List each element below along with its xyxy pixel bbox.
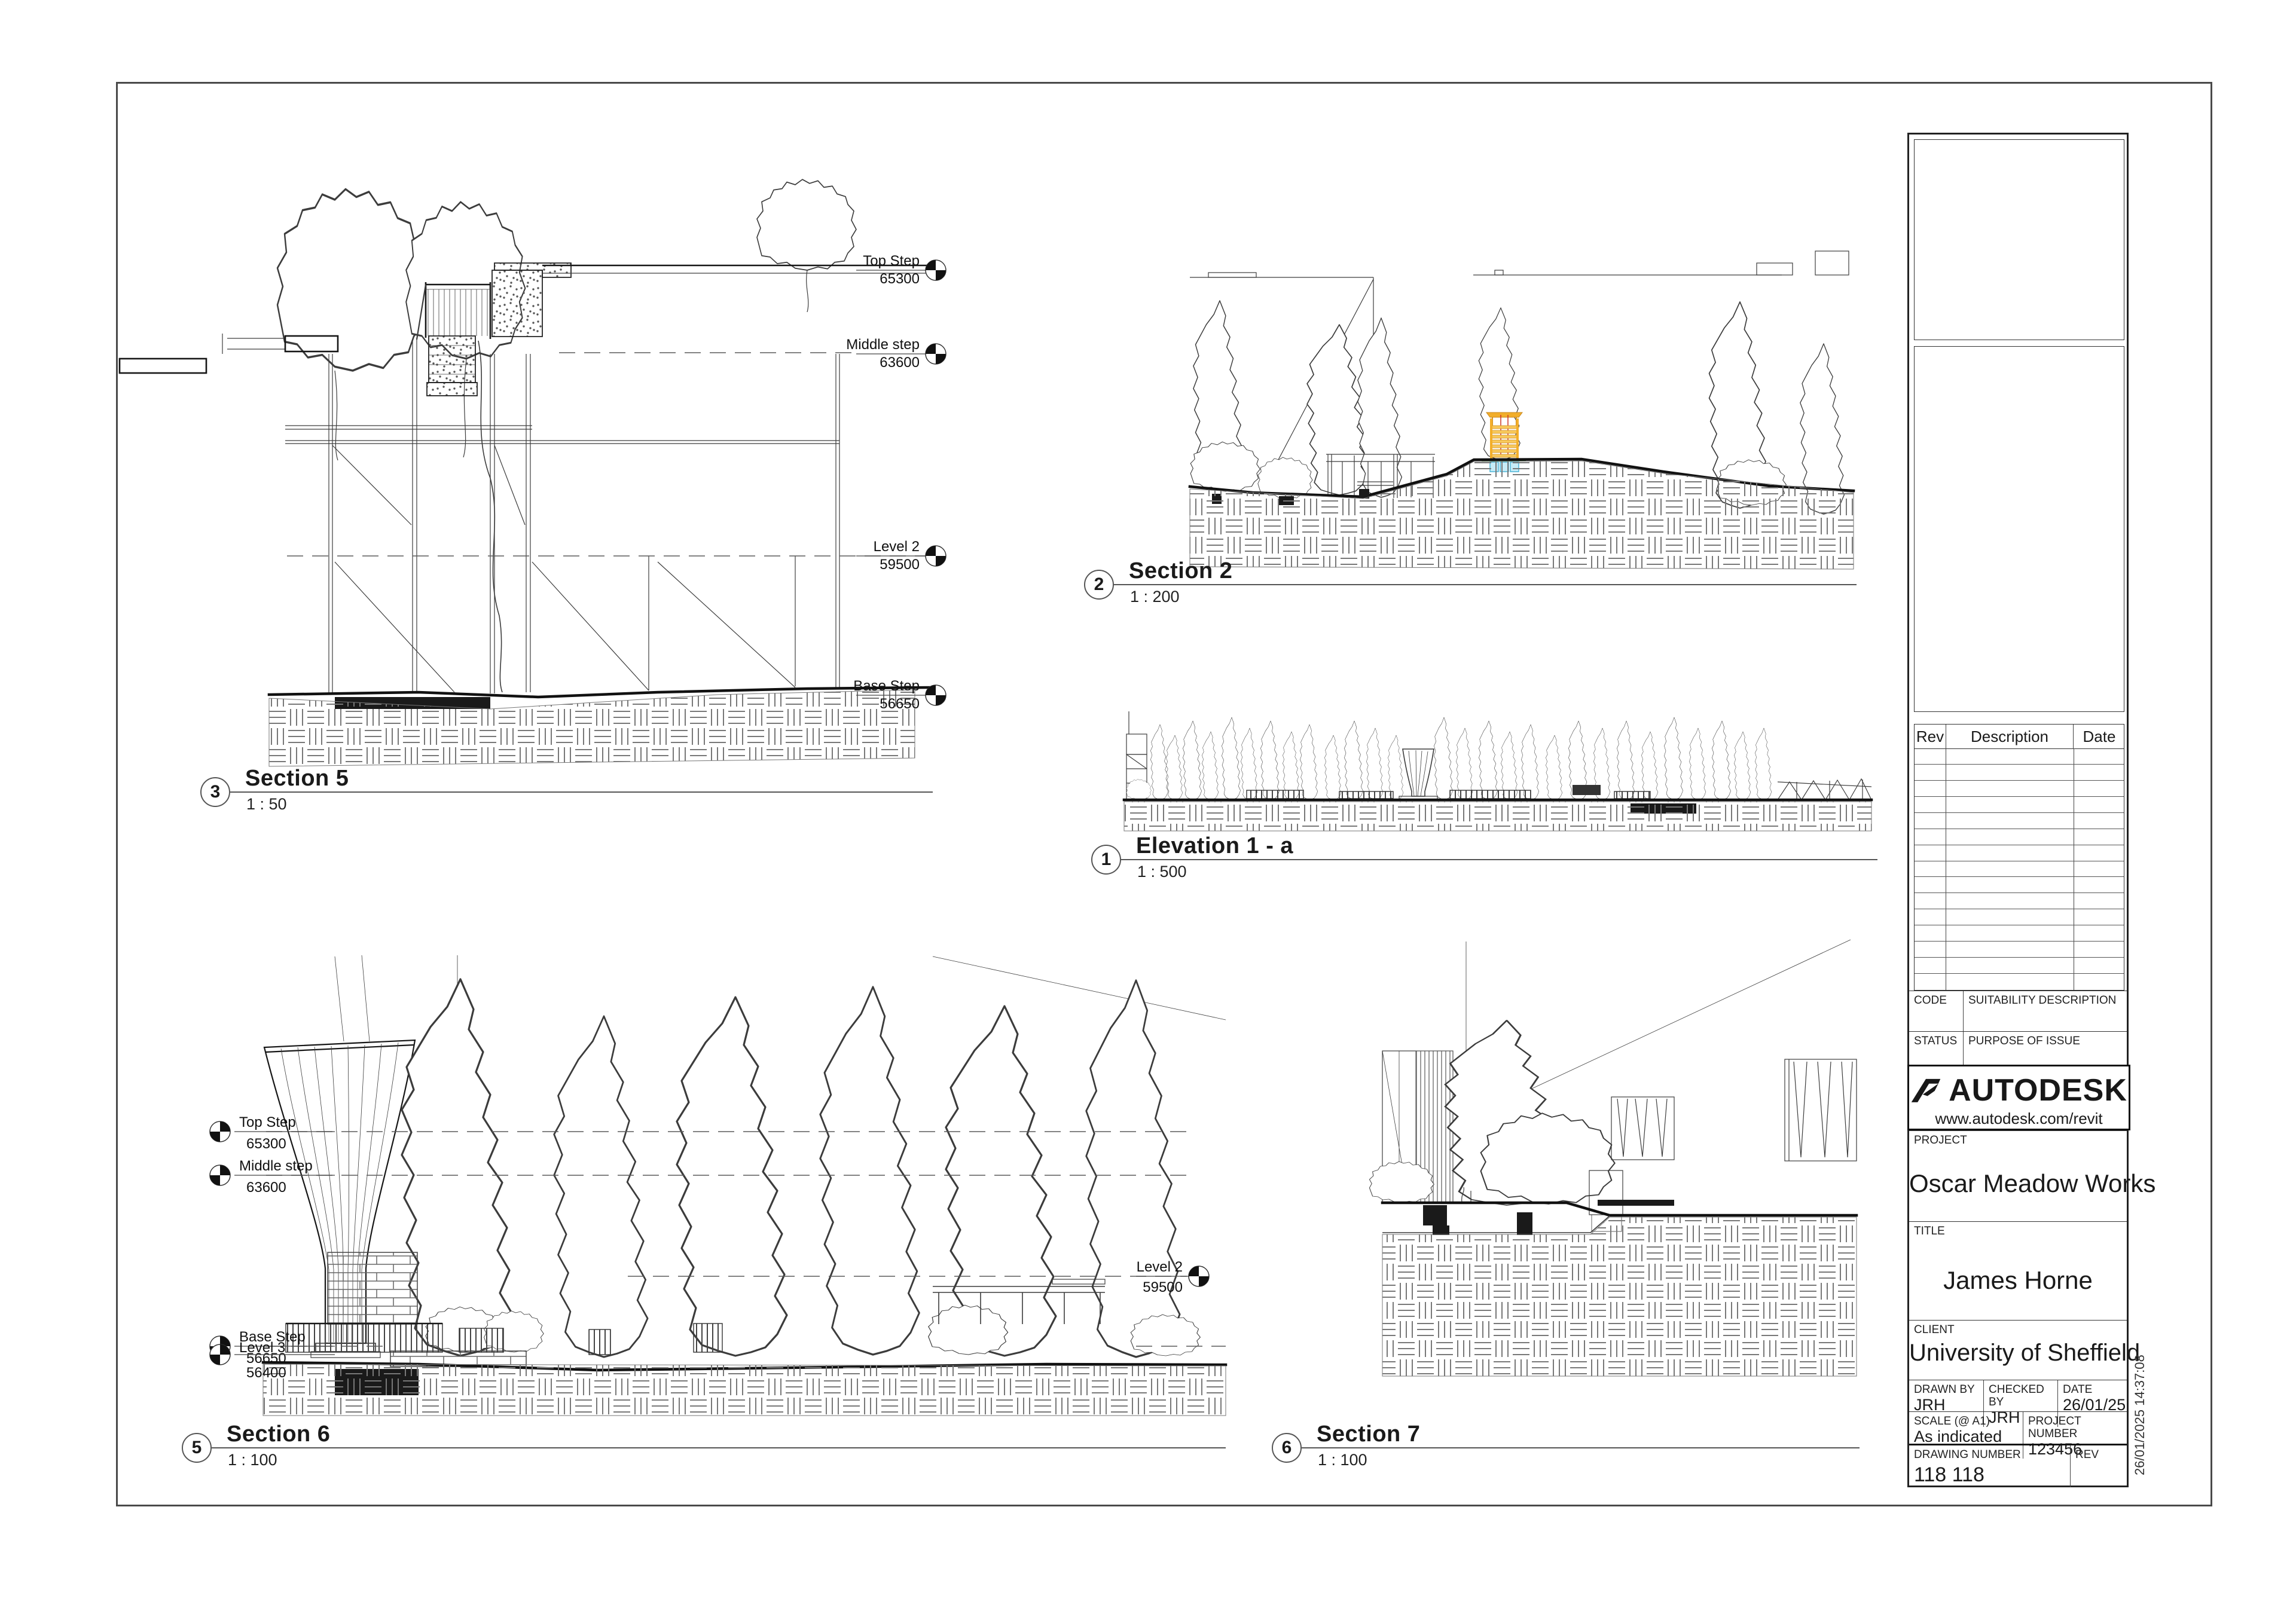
drawn-by-label: DRAWN BY [1914, 1383, 1983, 1396]
view-number-badge: 5 [182, 1433, 212, 1463]
svg-text:59500: 59500 [880, 557, 920, 573]
rev-label: REV [2075, 1448, 2127, 1461]
svg-text:Middle step: Middle step [846, 337, 920, 353]
level-annotation-top-step: Top Step 65300 [856, 253, 946, 287]
autodesk-brand-text: AUTODESK [1949, 1072, 2127, 1108]
view-title: Elevation 1 - a [1136, 833, 1293, 859]
svg-text:65300: 65300 [246, 1136, 286, 1152]
client-section: CLIENT University of Sheffield [1909, 1320, 2127, 1380]
view-title-rule [1114, 584, 1857, 585]
purpose-label: PURPOSE OF ISSUE [1963, 1032, 2130, 1065]
view-title: Section 7 [1317, 1422, 1420, 1447]
sheet-title: James Horne [1909, 1266, 2127, 1295]
svg-text:56650: 56650 [880, 696, 920, 712]
level-annotation-level2: Level 2 59500 [856, 539, 946, 573]
view-section7 [1369, 940, 1857, 1376]
client-label: CLIENT [1909, 1321, 2127, 1336]
svg-text:Base Step: Base Step [853, 678, 920, 694]
view-elevation1a [1124, 711, 1871, 831]
title-block: Rev Description Date CODE SUITABILITY DE… [1907, 133, 2129, 1487]
drawing-number-row: DRAWING NUMBER 118 118 REV [1909, 1444, 2127, 1487]
client-name: University of Sheffield [1909, 1340, 2127, 1367]
scale-row: SCALE (@ A1)As indicated PROJECT NUMBER1… [1909, 1411, 2127, 1444]
elevation-tower [1399, 749, 1437, 800]
svg-text:63600: 63600 [246, 1179, 286, 1196]
view-title-rule [1121, 859, 1877, 860]
tree-row [1126, 717, 1772, 800]
svg-text:Top Step: Top Step [239, 1114, 296, 1130]
autodesk-url: www.autodesk.com/revit [1909, 1109, 2129, 1128]
print-timestamp: 26/01/2025 14:37:08 [2132, 1355, 2148, 1475]
svg-text:59500: 59500 [1143, 1279, 1183, 1295]
empty-box [1914, 346, 2124, 712]
date-label: DATE [2063, 1383, 2127, 1396]
status-label: STATUS [1909, 1032, 1963, 1065]
view-scale: 1 : 500 [1137, 863, 1187, 881]
view-scale: 1 : 200 [1130, 588, 1180, 606]
ground-hatch [263, 1364, 1226, 1416]
svg-text:56400: 56400 [246, 1365, 286, 1381]
level-annotation-middle-step: Middle step 63600 [210, 1158, 335, 1196]
autodesk-box: AUTODESK www.autodesk.com/revit [1907, 1065, 2130, 1130]
code-row: CODE SUITABILITY DESCRIPTION [1909, 991, 2127, 1031]
view-title-rule [230, 791, 933, 793]
status-row: STATUS PURPOSE OF ISSUE [1909, 1031, 2127, 1065]
drawing-sheet: { "sheet": { "timestamp": "26/01/2025 14… [0, 0, 2296, 1623]
view-number-badge: 2 [1084, 570, 1114, 600]
trees [402, 979, 1200, 1357]
project-name: Oscar Meadow Works [1909, 1169, 2127, 1198]
map-box [1914, 139, 2124, 340]
project-label: PROJECT [1909, 1131, 2127, 1147]
trees [1369, 1020, 1614, 1205]
view-scale: 1 : 100 [1318, 1451, 1367, 1469]
level-annotation-top-step: Top Step 65300 [210, 1114, 335, 1152]
structure-frame [285, 339, 839, 695]
project-number-label: PROJECT NUMBER [2028, 1415, 2127, 1440]
revision-table-header: Rev Description Date [1915, 725, 2124, 749]
view-number-badge: 3 [200, 777, 230, 807]
view-section2 [1190, 251, 1854, 569]
brick-block [328, 1252, 417, 1324]
view-title-rule [1302, 1447, 1860, 1448]
foundation-blocks [1423, 1205, 1532, 1235]
svg-text:Top Step: Top Step [863, 253, 920, 269]
view-scale: 1 : 50 [246, 795, 287, 814]
view-title-rule [212, 1447, 1226, 1448]
svg-text:65300: 65300 [880, 271, 920, 287]
svg-text:Level 2: Level 2 [874, 539, 920, 555]
view-number-badge: 1 [1091, 845, 1121, 875]
right-building-a [1611, 1097, 1674, 1160]
autodesk-logo-icon [1910, 1077, 1941, 1104]
revision-table-rows [1915, 748, 2124, 990]
svg-text:Level 3: Level 3 [239, 1340, 285, 1356]
svg-text:Level 2: Level 2 [1137, 1259, 1183, 1275]
right-truss [1778, 779, 1871, 800]
checked-by-label: CHECKED BY [1989, 1383, 2057, 1408]
view-scale: 1 : 100 [228, 1451, 277, 1469]
view-title: Section 6 [227, 1422, 330, 1447]
code-label: CODE [1909, 991, 1963, 1031]
tower-slats [1491, 426, 1518, 457]
view-number-badge: 6 [1272, 1433, 1302, 1463]
level-annotation-middle-step: Middle step 63600 [846, 337, 946, 371]
view-title: Section 2 [1129, 558, 1232, 584]
drawing-number-value: 118 118 [1914, 1463, 2070, 1487]
view-section5: Top Step 65300 Middle step 63600 Level 2… [120, 179, 946, 766]
ground-hatch [1382, 1217, 1857, 1376]
people-row: DRAWN BYJRH CHECKED BYJRH DATE26/01/25 [1909, 1380, 2127, 1411]
revision-table: Rev Description Date [1914, 724, 2124, 991]
title-section: TITLE James Horne [1909, 1221, 2127, 1320]
project-section: PROJECT Oscar Meadow Works [1909, 1130, 2127, 1221]
title-label: TITLE [1909, 1222, 2127, 1237]
suitability-label: SUITABILITY DESCRIPTION [1963, 991, 2130, 1031]
view-section6: Top Step 65300 Middle step 63600 Base St… [210, 955, 1226, 1416]
drawing-number-label: DRAWING NUMBER [1914, 1448, 2070, 1461]
scale-label: SCALE (@ A1) [1914, 1415, 2023, 1428]
svg-text:Middle step: Middle step [239, 1158, 313, 1174]
right-building-b [1785, 1059, 1857, 1161]
view-title: Section 5 [245, 766, 349, 791]
ground-bar [1598, 1200, 1674, 1206]
svg-text:63600: 63600 [880, 354, 920, 371]
ground-hatch [1124, 802, 1871, 831]
